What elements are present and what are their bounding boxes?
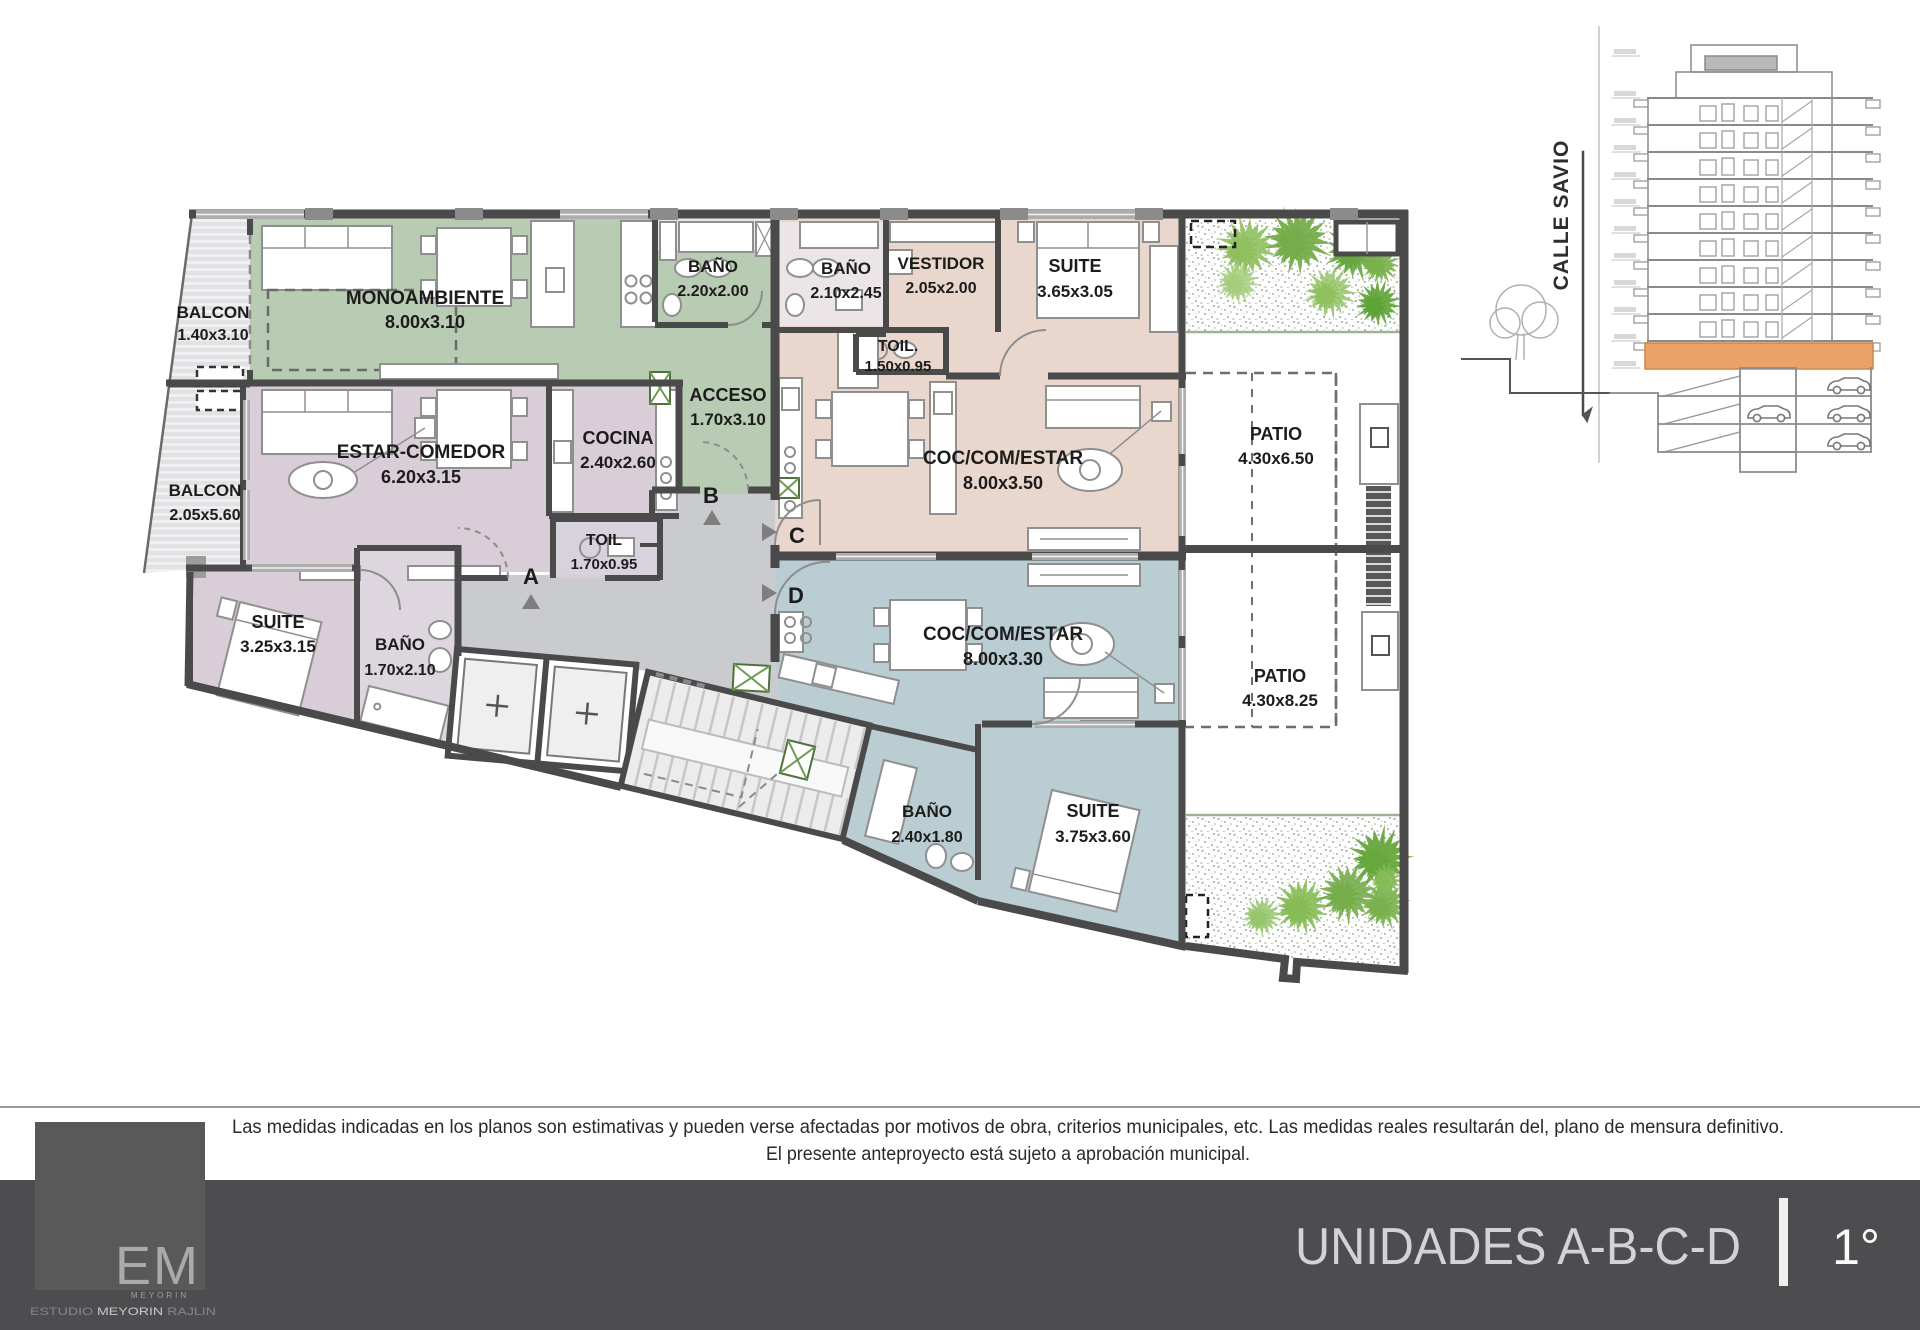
svg-text:2.05x2.00: 2.05x2.00	[905, 280, 976, 297]
svg-text:8.00x3.30: 8.00x3.30	[963, 649, 1043, 669]
svg-text:SUITE: SUITE	[1048, 256, 1101, 276]
svg-text:TOIL.: TOIL.	[878, 338, 919, 355]
svg-text:MONOAMBIENTE: MONOAMBIENTE	[346, 288, 504, 309]
svg-text:1°: 1°	[1832, 1219, 1880, 1275]
svg-text:EM: EM	[115, 1236, 200, 1296]
svg-text:El presente anteproyecto está: El presente anteproyecto está sujeto a a…	[766, 1143, 1250, 1165]
svg-text:2.40x2.60: 2.40x2.60	[580, 453, 656, 472]
svg-text:6.20x3.15: 6.20x3.15	[381, 467, 461, 487]
svg-text:PATIO: PATIO	[1250, 424, 1302, 444]
svg-text:CALLE SAVIO: CALLE SAVIO	[1550, 140, 1573, 291]
svg-text:Las medidas indicadas en los p: Las medidas indicadas en los planos son …	[232, 1116, 1784, 1138]
svg-text:1.50x0.95: 1.50x0.95	[865, 358, 932, 375]
svg-text:4.30x6.50: 4.30x6.50	[1238, 449, 1314, 468]
svg-text:C: C	[789, 523, 805, 548]
svg-text:BAÑO: BAÑO	[375, 634, 425, 654]
svg-text:1.70x3.10: 1.70x3.10	[690, 410, 766, 429]
svg-text:3.75x3.60: 3.75x3.60	[1055, 827, 1131, 846]
svg-text:BAÑO: BAÑO	[902, 801, 952, 821]
svg-text:2.05x5.60: 2.05x5.60	[169, 507, 240, 524]
svg-text:VESTIDOR: VESTIDOR	[898, 254, 985, 273]
svg-text:COCINA: COCINA	[583, 428, 654, 448]
svg-text:PATIO: PATIO	[1254, 666, 1306, 686]
svg-text:ESTAR-COMEDOR: ESTAR-COMEDOR	[337, 442, 506, 463]
svg-text:ACCESO: ACCESO	[689, 385, 766, 405]
svg-text:BALCON: BALCON	[169, 481, 242, 500]
svg-text:D: D	[788, 583, 804, 608]
svg-text:BAÑO: BAÑO	[688, 256, 738, 276]
svg-text:1.70x2.10: 1.70x2.10	[364, 662, 435, 679]
svg-text:SUITE: SUITE	[251, 612, 304, 632]
svg-text:BALCON: BALCON	[177, 303, 250, 322]
svg-text:3.25x3.15: 3.25x3.15	[240, 637, 316, 656]
svg-text:SUITE: SUITE	[1066, 801, 1119, 821]
svg-text:1.40x3.10: 1.40x3.10	[177, 327, 248, 344]
svg-text:COC/COM/ESTAR: COC/COM/ESTAR	[923, 448, 1083, 469]
svg-text:8.00x3.50: 8.00x3.50	[963, 473, 1043, 493]
svg-text:UNIDADES A-B-C-D: UNIDADES A-B-C-D	[1295, 1218, 1741, 1276]
svg-text:8.00x3.10: 8.00x3.10	[385, 312, 465, 332]
svg-text:TOIL: TOIL	[586, 532, 622, 549]
svg-text:ESTUDIO MEYORIN RAJLIN: ESTUDIO MEYORIN RAJLIN	[30, 1306, 216, 1318]
svg-text:1.70x0.95: 1.70x0.95	[571, 556, 638, 573]
svg-text:2.10x2.45: 2.10x2.45	[810, 285, 881, 302]
svg-text:BAÑO: BAÑO	[821, 258, 871, 278]
svg-text:2.20x2.00: 2.20x2.00	[677, 283, 748, 300]
svg-text:A: A	[523, 564, 539, 589]
svg-text:2.40x1.80: 2.40x1.80	[891, 829, 962, 846]
svg-text:3.65x3.05: 3.65x3.05	[1037, 282, 1113, 301]
svg-text:MEYORIN: MEYORIN	[131, 1291, 189, 1300]
svg-text:B: B	[703, 483, 719, 508]
svg-text:4.30x8.25: 4.30x8.25	[1242, 691, 1318, 710]
svg-text:COC/COM/ESTAR: COC/COM/ESTAR	[923, 624, 1083, 645]
